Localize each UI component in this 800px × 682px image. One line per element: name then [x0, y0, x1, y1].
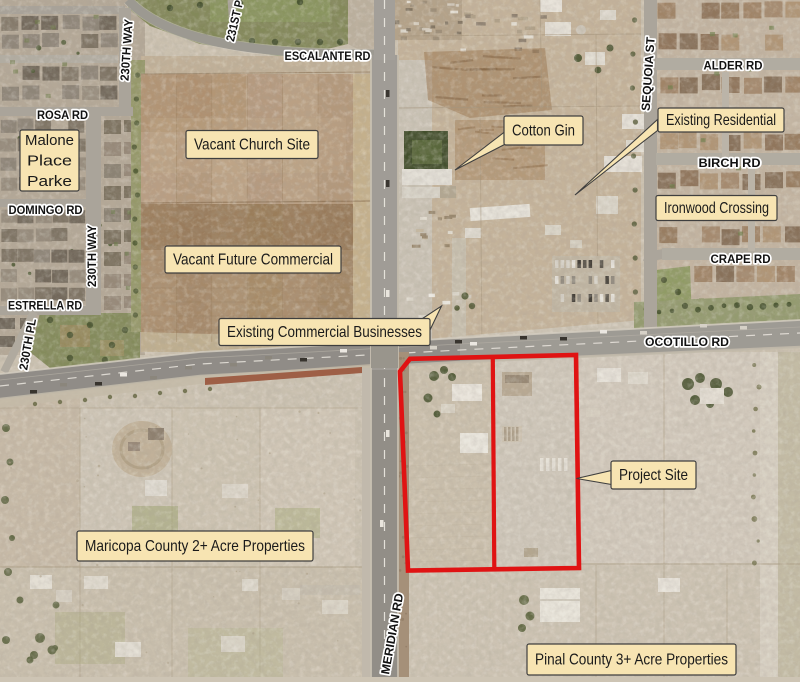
svg-text:Project Site: Project Site	[619, 467, 688, 484]
svg-text:Ironwood Crossing: Ironwood Crossing	[664, 200, 769, 217]
svg-text:BIRCH RD: BIRCH RD	[699, 156, 761, 170]
svg-text:Vacant Future Commercial: Vacant Future Commercial	[173, 252, 333, 269]
svg-text:DOMINGO RD: DOMINGO RD	[9, 203, 83, 217]
svg-text:ALDER RD: ALDER RD	[704, 59, 763, 73]
svg-text:Cotton Gin: Cotton Gin	[512, 123, 575, 140]
svg-text:Vacant Church Site: Vacant Church Site	[194, 137, 310, 154]
svg-text:Existing Commercial Businesses: Existing Commercial Businesses	[227, 324, 422, 341]
svg-text:CRAPE RD: CRAPE RD	[711, 252, 771, 266]
svg-text:Pinal County 3+ Acre Propertie: Pinal County 3+ Acre Properties	[535, 652, 728, 669]
svg-text:ESTRELLA RD: ESTRELLA RD	[8, 299, 82, 313]
svg-text:ESCALANTE RD: ESCALANTE RD	[285, 49, 371, 63]
svg-text:Parke: Parke	[27, 173, 72, 190]
svg-text:Existing Residential: Existing Residential	[666, 112, 776, 129]
svg-text:230TH WAY: 230TH WAY	[85, 225, 99, 287]
svg-text:ROSA RD: ROSA RD	[37, 108, 88, 122]
svg-text:OCOTILLO RD: OCOTILLO RD	[645, 335, 729, 349]
svg-text:Place: Place	[27, 152, 72, 169]
svg-text:Malone: Malone	[25, 132, 74, 149]
svg-text:Maricopa County 2+ Acre Proper: Maricopa County 2+ Acre Properties	[85, 538, 305, 555]
